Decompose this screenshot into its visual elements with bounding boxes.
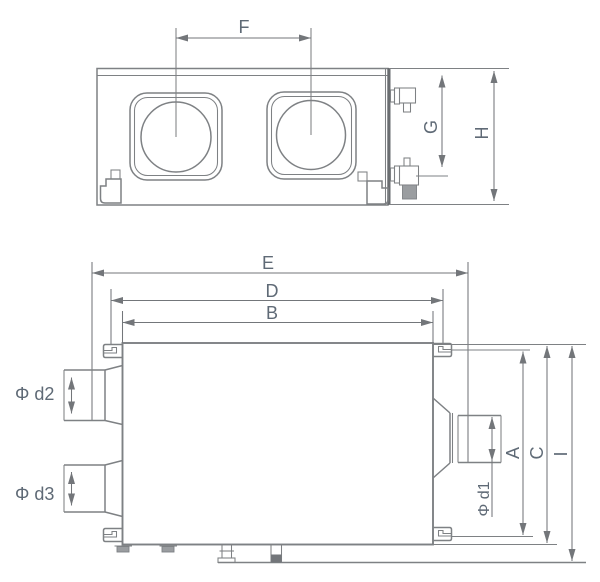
bracket-slot (104, 348, 117, 354)
dim-label-d2: Φ d2 (15, 384, 54, 404)
drain-pipe-1 (218, 545, 235, 563)
fitting-flange (391, 168, 395, 181)
duct-d2 (64, 366, 123, 425)
duct-collar-slants (105, 461, 123, 517)
drain-block (403, 185, 417, 199)
bracket-cup (367, 181, 388, 204)
fitting-body (400, 88, 416, 103)
mounting-foot-2 (160, 546, 178, 552)
dim-label-H: H (472, 127, 492, 140)
duct-collar-slants (105, 366, 123, 425)
fitting-body (400, 166, 419, 185)
valve-fitting-upper (391, 88, 416, 112)
dim-label-I: I (551, 451, 571, 456)
foot-block (162, 547, 174, 553)
dim-label-A: A (503, 447, 523, 459)
bracket-top-view-right (358, 172, 388, 204)
fitting-stub (404, 103, 411, 112)
bracket-top-view-left (101, 170, 122, 203)
dim-label-B: B (266, 303, 278, 323)
fitting-stub (404, 158, 410, 166)
fitting-flange (395, 166, 400, 183)
drawing-canvas: F G H (0, 0, 600, 582)
hanger-bracket-bottom-right (433, 528, 533, 541)
dim-label-d3: Φ d3 (15, 484, 54, 504)
dim-label-F: F (239, 17, 250, 37)
foot-block (117, 547, 129, 553)
bracket-slot (104, 532, 117, 538)
bracket-tab (111, 170, 120, 179)
dim-label-d1: Φ d1 (476, 481, 493, 516)
fitting-flange (391, 90, 395, 102)
hanger-bracket-top-right (433, 344, 530, 357)
duct-d3 (64, 461, 123, 517)
front-view: E D B (15, 253, 586, 563)
bracket-cup (101, 179, 122, 203)
dim-label-D: D (266, 281, 279, 301)
drain-plug (271, 555, 282, 563)
hanger-bracket-bottom-left (104, 529, 123, 542)
valve-fitting-lower (391, 158, 419, 199)
fitting-flange (395, 88, 400, 104)
dim-label-E: E (262, 253, 274, 273)
top-view: F G H (97, 17, 509, 205)
hanger-bracket-top-left (104, 345, 123, 358)
bracket-slot (439, 531, 452, 537)
unit-body-front-view (123, 343, 434, 545)
bracket-slot (439, 347, 452, 353)
dim-label-G: G (421, 120, 441, 134)
mounting-foot-1 (115, 546, 133, 552)
drain-pipe-2 (271, 545, 282, 563)
bracket-tab (358, 172, 367, 181)
duct-collar-slants (433, 398, 450, 478)
hvac-unit-dimension-drawing: F G H (0, 0, 600, 582)
dim-label-C: C (527, 447, 547, 460)
